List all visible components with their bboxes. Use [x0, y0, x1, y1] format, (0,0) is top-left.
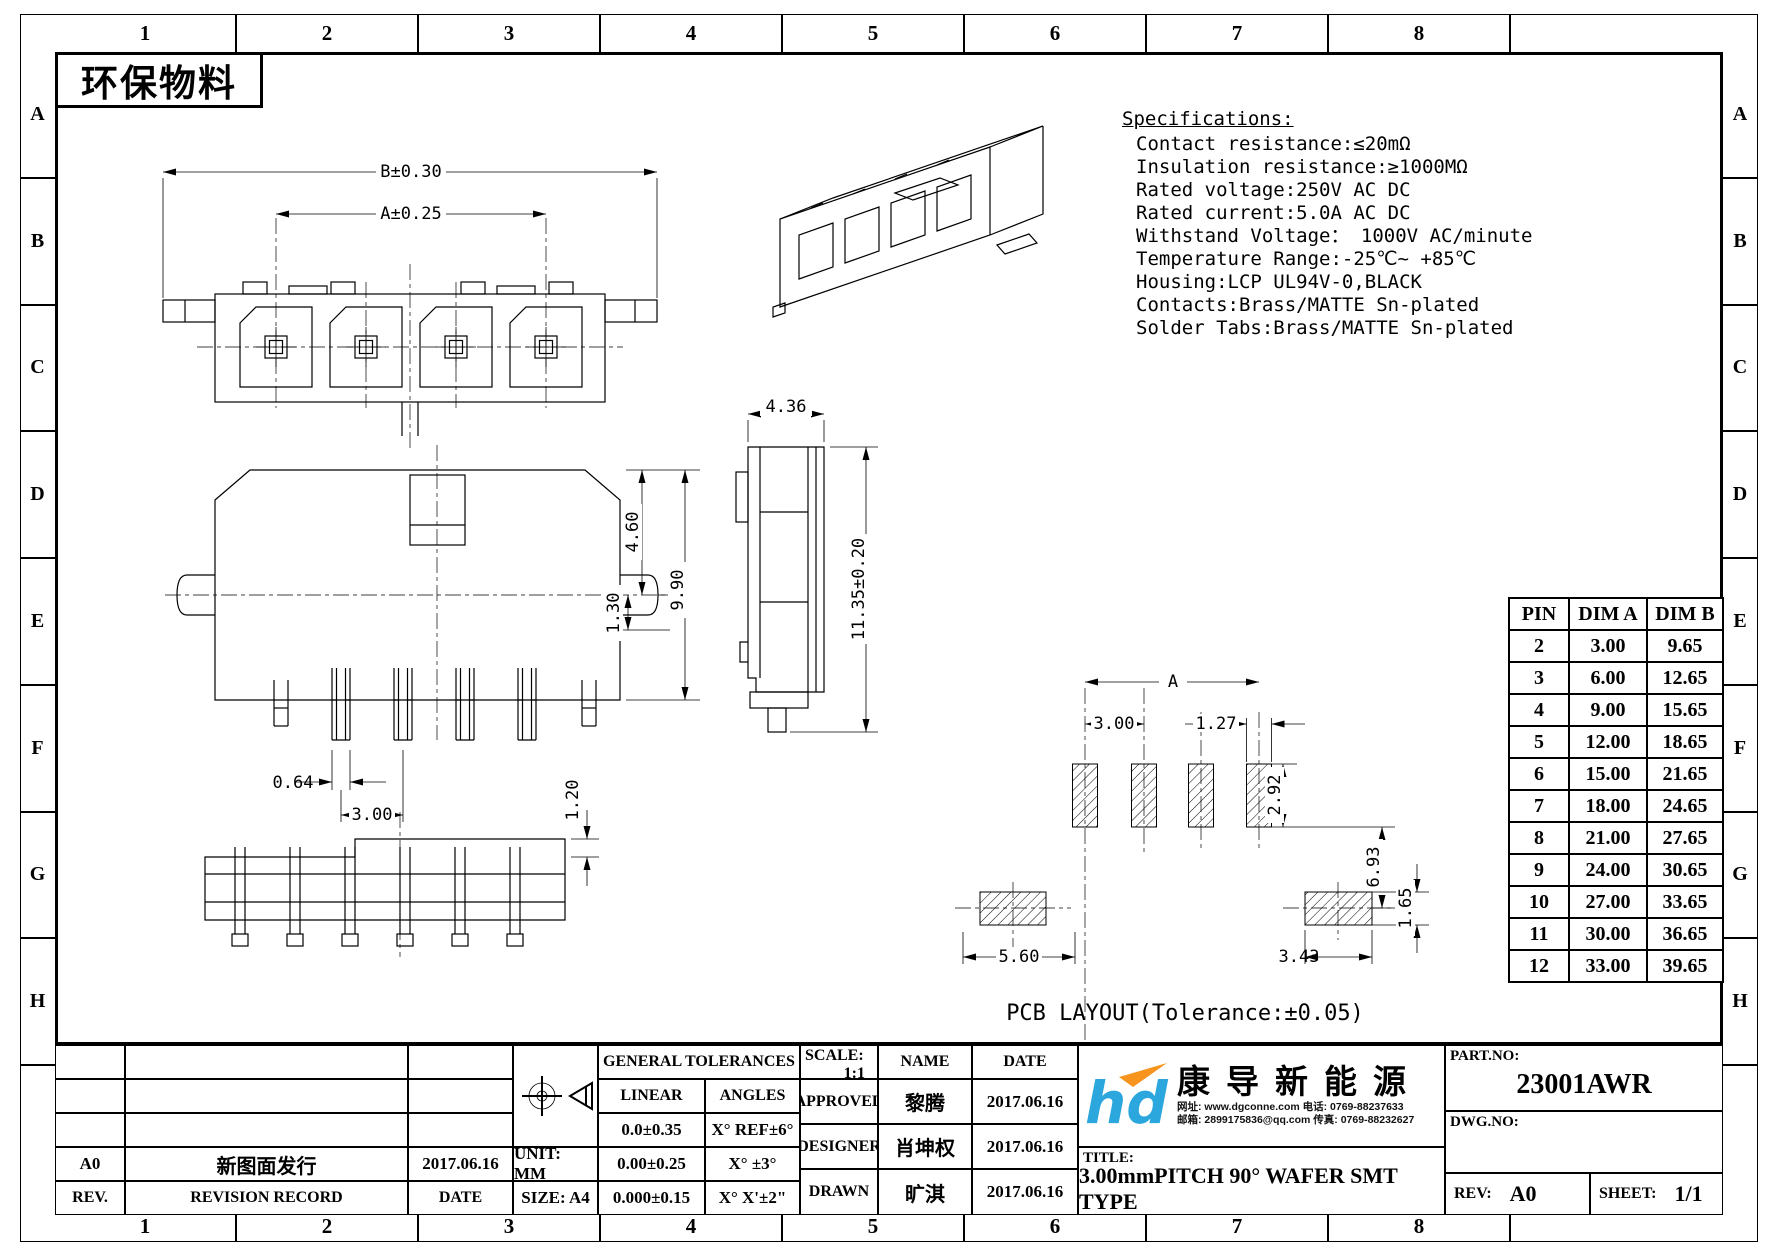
scale-value: 1:1: [844, 1065, 865, 1079]
grid-col-label: 3: [419, 14, 601, 52]
drawing-title: 3.00mmPITCH 90° WAFER SMT TYPE: [1079, 1163, 1444, 1215]
cell-pin: 7: [1509, 790, 1569, 822]
cell-pin: 12: [1509, 950, 1569, 982]
grid-col-label: 1: [55, 1212, 237, 1241]
grid-col-label: 4: [601, 1212, 783, 1241]
sheet-label: SHEET:: [1599, 1185, 1657, 1203]
grid-row-label: F: [1723, 686, 1757, 813]
dim-label-pcb-pitch: 3.00: [1094, 714, 1135, 734]
view-isometric: [773, 126, 1043, 317]
dim-label-pcb-span: A: [1168, 672, 1178, 692]
cell-pin: 10: [1509, 886, 1569, 918]
cell-dim-b: 21.65: [1647, 758, 1723, 790]
grid-col-label: 5: [783, 14, 965, 52]
grid-col-label: 8: [1329, 14, 1511, 52]
company-logo-icon: hd: [1085, 1059, 1169, 1133]
tolerance-angle-value: X° X'±2": [705, 1181, 800, 1215]
title-cell: TITLE: 3.00mmPITCH 90° WAFER SMT TYPE: [1078, 1147, 1445, 1215]
dim-label-rear-pin-width: 0.64: [273, 773, 314, 793]
spec-line: Contacts:Brass/MATTE Sn-plated: [1122, 294, 1592, 317]
revision-empty-cell: [125, 1079, 408, 1113]
dim-label-side-depth: 4.36: [766, 397, 807, 417]
view-front: B±0.30 A±0.25: [163, 162, 657, 452]
spec-line: Rated voltage:250V AC DC: [1122, 179, 1592, 202]
grid-row-label: B: [20, 179, 55, 306]
grid-row-label: E: [1723, 559, 1757, 686]
cell-dim-b: 24.65: [1647, 790, 1723, 822]
view-bottom: 1.20: [205, 780, 599, 957]
svg-text:hd: hd: [1085, 1069, 1168, 1133]
column-header: PIN: [1509, 598, 1569, 630]
grid-row-label: D: [20, 432, 55, 559]
cell-dim-a: 24.00: [1569, 854, 1647, 886]
grid-row-label: H: [20, 939, 55, 1066]
column-header: DIM A: [1569, 598, 1647, 630]
drawn-date: 2017.06.16: [972, 1169, 1078, 1215]
table-row: 23.009.65: [1509, 630, 1723, 662]
cell-dim-a: 15.00: [1569, 758, 1647, 790]
sheet-value: 1/1: [1675, 1181, 1703, 1207]
tolerances-title: GENERAL TOLERANCES: [598, 1045, 800, 1079]
grid-row-label: D: [1723, 432, 1757, 559]
dim-label-pcb-gap: 6.93: [1364, 847, 1384, 888]
grid-row-label: C: [1723, 306, 1757, 433]
title-block: A0 新图面发行 2017.06.16 REV. REVISION RECORD…: [55, 1042, 1723, 1212]
company-contact-line1: 网址: www.dgconne.com 电话: 0769-88237633: [1177, 1101, 1422, 1114]
grid-col-label: 7: [1147, 1212, 1329, 1241]
spec-line: Rated current:5.0A AC DC: [1122, 202, 1592, 225]
revision-empty-cell: [55, 1045, 125, 1079]
cell-dim-b: 18.65: [1647, 726, 1723, 758]
grid-row-label: G: [1723, 813, 1757, 940]
column-header: DIM B: [1647, 598, 1723, 630]
table-row: 1233.0039.65: [1509, 950, 1723, 982]
dim-label-rear-upper: 4.60: [623, 512, 643, 553]
revision-date-label: DATE: [408, 1181, 513, 1215]
view-pcb-layout: A 3.00 1.27 2.92: [955, 672, 1429, 1042]
revision-empty-cell: [125, 1113, 408, 1147]
cell-dim-b: 9.65: [1647, 630, 1723, 662]
company-contact-line2: 邮箱: 2899175836@qq.com 传真: 0769-88232627: [1177, 1114, 1422, 1127]
pcb-layout-caption: PCB LAYOUT(Tolerance:±0.05): [1006, 1001, 1364, 1026]
dim-label-bottom-step: 1.20: [563, 780, 583, 821]
pin-dimension-table: PIN DIM A DIM B 23.009.65 36.0012.65 49.…: [1508, 597, 1724, 983]
tolerance-linear-value: 0.0±0.35: [598, 1113, 705, 1147]
designer-label: DESIGNER: [800, 1124, 878, 1169]
cell-dim-a: 6.00: [1569, 662, 1647, 694]
rev-cell: REV: A0: [1445, 1173, 1590, 1215]
dim-label-pcb-pad-width: 1.27: [1196, 714, 1237, 734]
table-row: 512.0018.65: [1509, 726, 1723, 758]
cell-dim-a: 21.00: [1569, 822, 1647, 854]
drawn-name: 旷淇: [878, 1169, 972, 1215]
table-row: 49.0015.65: [1509, 694, 1723, 726]
dwg-no-label: DWG.NO:: [1450, 1114, 1519, 1131]
view-side: 4.36 11.35±0.20: [736, 397, 878, 732]
grid-row-label: A: [20, 52, 55, 179]
grid-row-label: C: [20, 306, 55, 433]
cell-dim-b: 12.65: [1647, 662, 1723, 694]
spec-line: Contact resistance:≤20mΩ: [1122, 133, 1592, 156]
table-row: 821.0027.65: [1509, 822, 1723, 854]
tolerance-angle-value: X° ±3°: [705, 1147, 800, 1181]
table-row: 924.0030.65: [1509, 854, 1723, 886]
tolerance-linear-value: 0.000±0.15: [598, 1181, 705, 1215]
grid-col-label: 2: [237, 1212, 419, 1241]
table-row: 1027.0033.65: [1509, 886, 1723, 918]
dim-label-rear-pitch: 3.00: [352, 805, 393, 825]
cell-dim-a: 18.00: [1569, 790, 1647, 822]
specifications-block: Specifications: Contact resistance:≤20mΩ…: [1122, 108, 1592, 340]
grid-band-top: 1 2 3 4 5 6 7 8: [55, 14, 1511, 52]
cell-pin: 5: [1509, 726, 1569, 758]
drawn-label: DRAWN: [800, 1169, 878, 1215]
approved-label: APPROVED: [800, 1079, 878, 1124]
grid-band-bottom: 1 2 3 4 5 6 7 8: [55, 1212, 1511, 1241]
revision-rev-label: REV.: [55, 1181, 125, 1215]
revision-record-value: 新图面发行: [125, 1147, 408, 1181]
grid-row-label: B: [1723, 179, 1757, 306]
revision-empty-cell: [408, 1113, 513, 1147]
cell-dim-a: 9.00: [1569, 694, 1647, 726]
cell-dim-a: 12.00: [1569, 726, 1647, 758]
grid-col-label: 1: [55, 14, 237, 52]
third-angle-projection-icon: [514, 1046, 597, 1146]
revision-record-label: REVISION RECORD: [125, 1181, 408, 1215]
dim-label-front-overall: B±0.30: [380, 162, 441, 182]
approved-name: 黎腾: [878, 1079, 972, 1124]
grid-col-label: 6: [965, 14, 1147, 52]
dim-label-pcb-right-pad: 3.43: [1279, 947, 1320, 967]
grid-col-label: 7: [1147, 14, 1329, 52]
sheet-cell: SHEET: 1/1: [1590, 1173, 1723, 1215]
grid-col-label: 4: [601, 14, 783, 52]
grid-row-label: G: [20, 813, 55, 940]
grid-row-label: F: [20, 686, 55, 813]
spec-line: Solder Tabs:Brass/MATTE Sn-plated: [1122, 317, 1592, 340]
table-row: 1130.0036.65: [1509, 918, 1723, 950]
part-no-value: 23001AWR: [1516, 1069, 1651, 1101]
unit-label: UNIT: MM: [513, 1147, 598, 1181]
cell-pin: 2: [1509, 630, 1569, 662]
cell-pin: 9: [1509, 854, 1569, 886]
grid-col-label: 2: [237, 14, 419, 52]
cell-dim-b: 36.65: [1647, 918, 1723, 950]
grid-col-label: 6: [965, 1212, 1147, 1241]
part-no-cell: PART.NO: 23001AWR: [1445, 1045, 1723, 1111]
cell-dim-b: 30.65: [1647, 854, 1723, 886]
grid-row-label: A: [1723, 52, 1757, 179]
table-header-row: PIN DIM A DIM B: [1509, 598, 1723, 630]
cell-pin: 3: [1509, 662, 1569, 694]
dim-label-pcb-pad-height: 2.92: [1265, 775, 1285, 816]
cell-pin: 6: [1509, 758, 1569, 790]
view-rear: 4.60 1.30 9.90 0.64: [165, 445, 700, 825]
spec-line: Housing:LCP UL94V-0,BLACK: [1122, 271, 1592, 294]
revision-empty-cell: [125, 1045, 408, 1079]
cell-dim-a: 3.00: [1569, 630, 1647, 662]
specifications-title: Specifications:: [1122, 108, 1592, 131]
drawing-sheet: 1 2 3 4 5 6 7 8 1 2 3 4 5 6 7 8 A B C D …: [0, 0, 1778, 1257]
cell-dim-b: 39.65: [1647, 950, 1723, 982]
dim-label-rear-peg: 1.30: [604, 593, 624, 634]
part-no-label: PART.NO:: [1450, 1048, 1519, 1065]
tolerances-linear-label: LINEAR: [598, 1079, 705, 1113]
cell-pin: 11: [1509, 918, 1569, 950]
cell-pin: 4: [1509, 694, 1569, 726]
cell-dim-a: 30.00: [1569, 918, 1647, 950]
revision-date-value: 2017.06.16: [408, 1147, 513, 1181]
grid-col-label: 3: [419, 1212, 601, 1241]
cell-dim-b: 27.65: [1647, 822, 1723, 854]
designer-name: 肖坤权: [878, 1124, 972, 1169]
dim-label-rear-height: 9.90: [668, 570, 688, 611]
grid-row-label: H: [1723, 939, 1757, 1066]
grid-band-right: A B C D E F G H: [1723, 52, 1757, 1066]
cell-dim-a: 33.00: [1569, 950, 1647, 982]
cell-dim-b: 33.65: [1647, 886, 1723, 918]
name-column-label: NAME: [878, 1045, 972, 1079]
projection-symbol-box: [513, 1045, 598, 1147]
spec-line: Temperature Range:-25℃~ +85℃: [1122, 248, 1592, 271]
dim-label-front-span: A±0.25: [380, 204, 441, 224]
dwg-no-cell: DWG.NO:: [1445, 1111, 1723, 1173]
revision-empty-cell: [55, 1113, 125, 1147]
title-label: TITLE:: [1083, 1150, 1134, 1167]
company-logo-cell: hd 康导新能源 网址: www.dgconne.com 电话: 0769-88…: [1078, 1045, 1445, 1147]
rev-value: A0: [1510, 1181, 1537, 1207]
revision-rev-value: A0: [55, 1147, 125, 1181]
scale-label: SCALE:: [805, 1047, 864, 1065]
table-row: 615.0021.65: [1509, 758, 1723, 790]
designer-date: 2017.06.16: [972, 1124, 1078, 1169]
grid-band-left: A B C D E F G H: [20, 52, 55, 1066]
approved-date: 2017.06.16: [972, 1079, 1078, 1124]
cell-pin: 8: [1509, 822, 1569, 854]
size-label: SIZE: A4: [513, 1181, 598, 1215]
spec-line: Insulation resistance:≥1000MΩ: [1122, 156, 1592, 179]
tolerance-linear-value: 0.00±0.25: [598, 1147, 705, 1181]
company-name: 康导新能源: [1177, 1065, 1422, 1101]
grid-col-label: 8: [1329, 1212, 1511, 1241]
grid-row-label: E: [20, 559, 55, 686]
dim-label-side-height: 11.35±0.20: [849, 538, 869, 640]
cell-dim-b: 15.65: [1647, 694, 1723, 726]
rev-label: REV:: [1454, 1185, 1492, 1203]
table-row: 718.0024.65: [1509, 790, 1723, 822]
date-column-label: DATE: [972, 1045, 1078, 1079]
table-row: 36.0012.65: [1509, 662, 1723, 694]
dim-label-pcb-pad-thickness: 1.65: [1396, 888, 1416, 929]
cell-dim-a: 27.00: [1569, 886, 1647, 918]
grid-col-label: 5: [783, 1212, 965, 1241]
spec-line: Withstand Voltage： 1000V AC/minute: [1122, 225, 1592, 248]
dim-label-pcb-left-pad: 5.60: [999, 947, 1040, 967]
tolerance-angle-value: X° REF±6°: [705, 1113, 800, 1147]
revision-empty-cell: [408, 1045, 513, 1079]
tolerances-angles-label: ANGLES: [705, 1079, 800, 1113]
scale-cell: SCALE: 1:1: [800, 1045, 878, 1079]
revision-empty-cell: [55, 1079, 125, 1113]
revision-empty-cell: [408, 1079, 513, 1113]
